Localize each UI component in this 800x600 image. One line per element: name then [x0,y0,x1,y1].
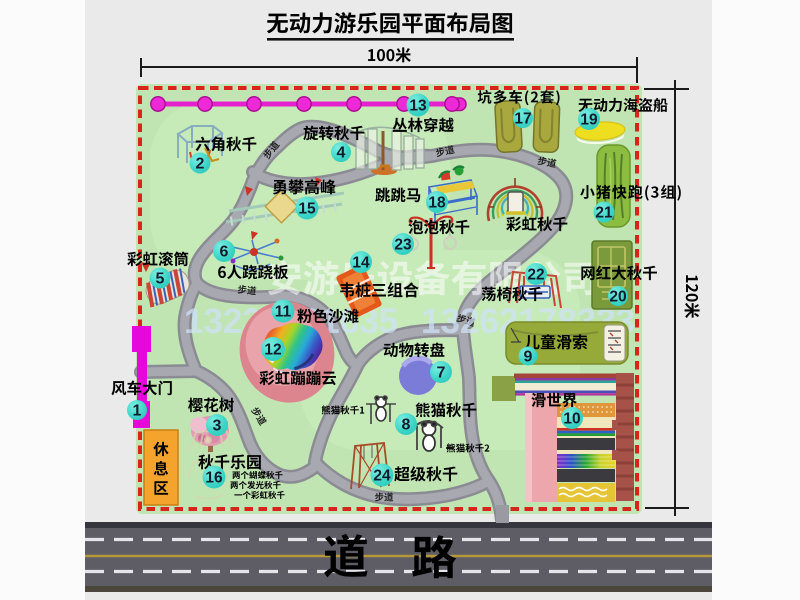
svg-text:14: 14 [352,255,370,272]
svg-text:18: 18 [428,195,446,212]
svg-text:8: 8 [402,417,411,434]
svg-text:1: 1 [133,403,142,420]
svg-text:12: 12 [264,342,281,359]
svg-text:5: 5 [156,271,165,288]
svg-text:13: 13 [409,98,427,115]
svg-text:24: 24 [373,468,391,485]
svg-text:19: 19 [580,112,598,129]
svg-text:2: 2 [196,156,205,173]
svg-text:22: 22 [527,267,544,284]
svg-text:7: 7 [437,365,446,382]
svg-text:11: 11 [275,304,292,321]
svg-text:6: 6 [220,244,229,261]
svg-text:10: 10 [563,411,580,428]
svg-text:9: 9 [524,349,533,366]
svg-text:4: 4 [337,145,346,162]
svg-text:21: 21 [595,205,613,222]
svg-text:23: 23 [394,237,412,254]
svg-text:16: 16 [205,470,223,487]
svg-text:15: 15 [298,201,316,218]
svg-text:17: 17 [514,111,531,128]
svg-text:3: 3 [213,418,222,435]
svg-text:20: 20 [609,289,626,306]
